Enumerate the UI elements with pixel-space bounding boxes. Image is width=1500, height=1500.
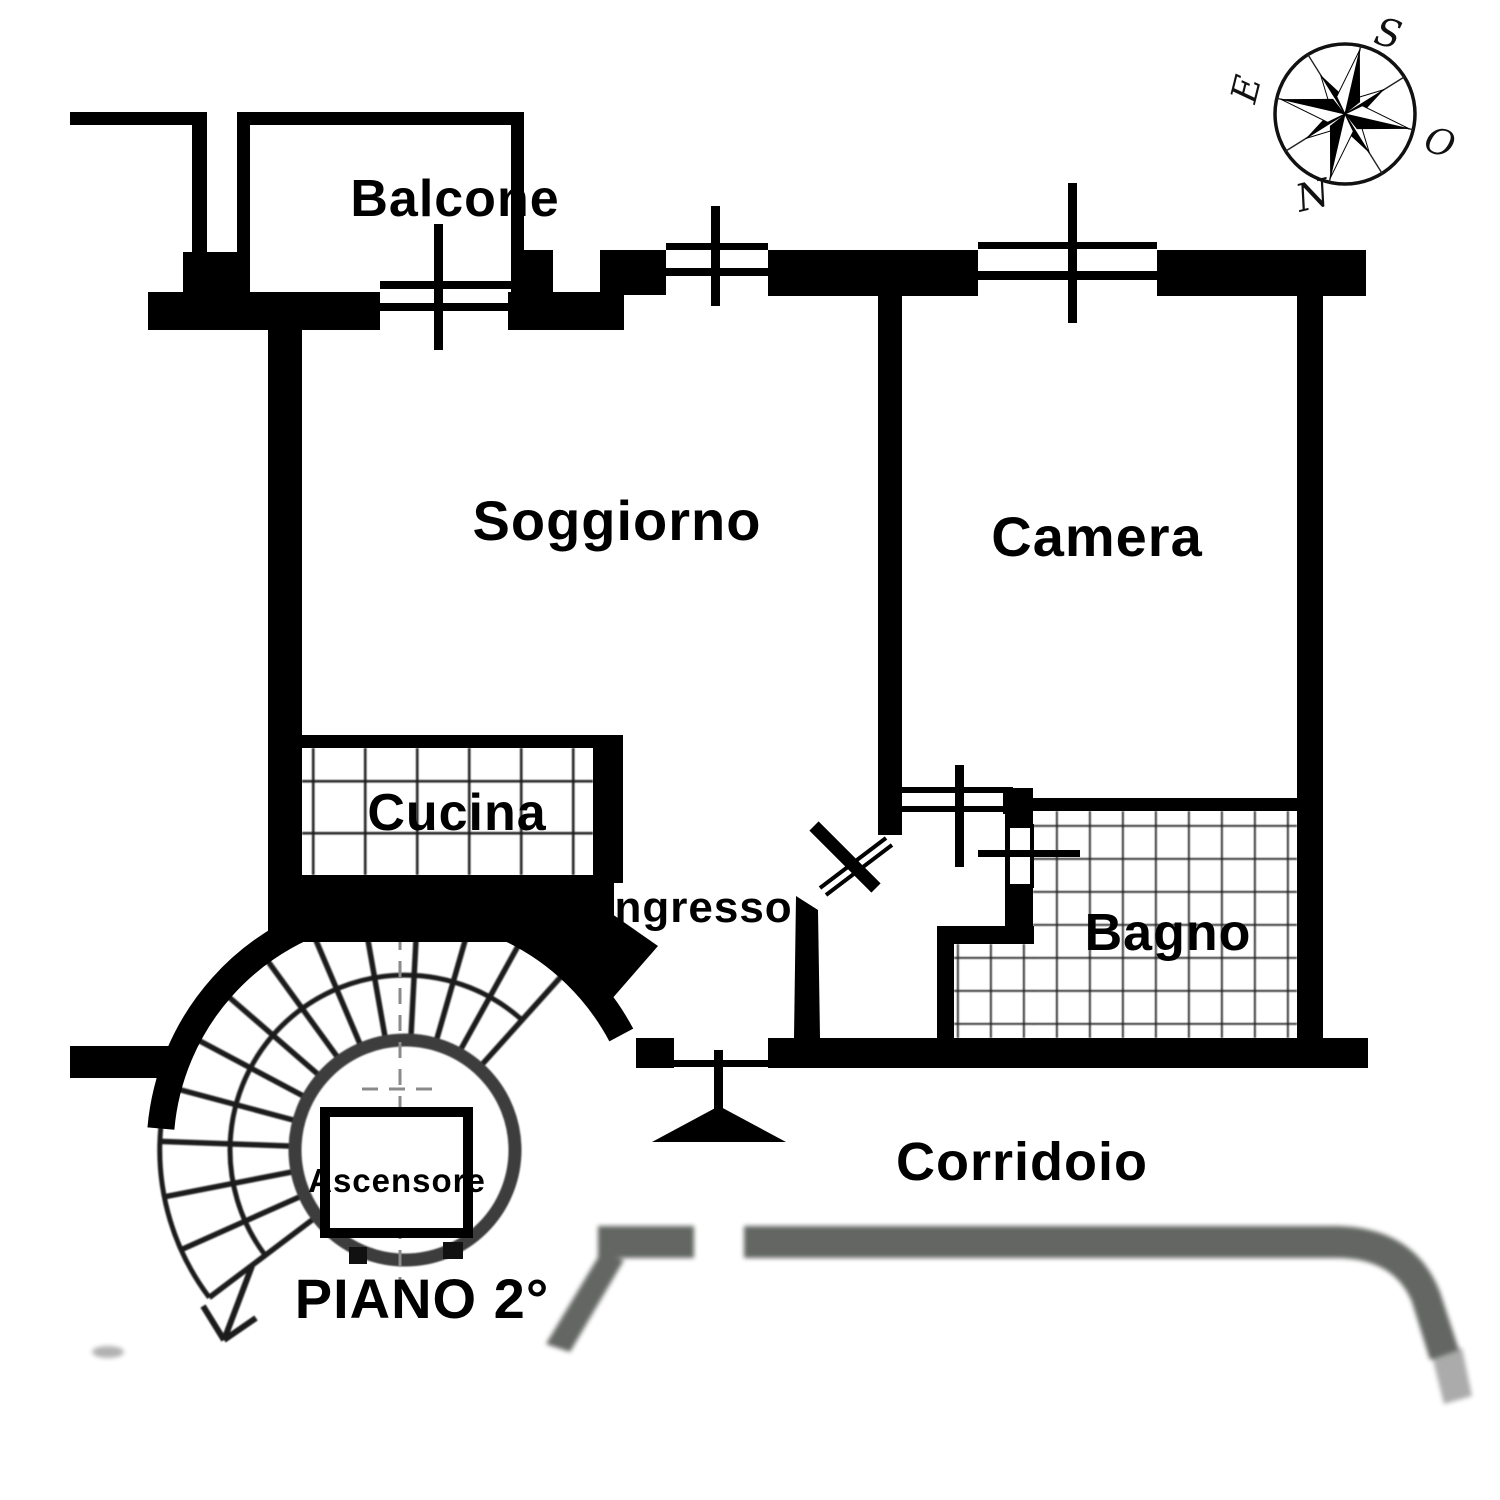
corridoio-label: Corridoio [896, 1132, 1148, 1192]
camera-bagno-wall [1013, 798, 1297, 811]
balcony-top-wall [237, 112, 524, 125]
top-wall-left [148, 292, 380, 330]
floor-title: PIANO 2° [295, 1267, 549, 1330]
balcony-right-foot [511, 250, 553, 294]
neighbor-wall-vertical [192, 112, 207, 258]
elevator-post [443, 1242, 463, 1259]
window-frame-line [978, 271, 1157, 280]
stairwell-wall-stub [70, 1046, 172, 1078]
camera-window [978, 183, 1157, 323]
stair-direction-arrow [203, 1266, 256, 1340]
stair-step-line [160, 1141, 295, 1146]
ingresso-angled-wall [794, 896, 820, 1038]
cucina-right-wall [593, 735, 623, 883]
ingresso-label: Ingresso [601, 883, 792, 932]
corridor-wall-right-tail [1432, 1348, 1472, 1404]
elevator-post [349, 1247, 367, 1264]
window-cross-tick [978, 850, 1080, 857]
right-outer-wall [1297, 294, 1323, 1040]
window-frame-line [978, 242, 1157, 249]
compass-north-label: N [1290, 170, 1336, 221]
corridor-wall-left-diagonal [546, 1254, 624, 1352]
compass-rose: S E O N [1224, 9, 1460, 221]
soggiorno-window [666, 206, 768, 306]
window-cross-tick [1068, 183, 1077, 323]
elevator: Ascensore [308, 1112, 486, 1233]
window-cross-tick [434, 224, 443, 350]
cucina-top-wall [300, 735, 598, 748]
stair-step-line [189, 1035, 308, 1098]
top-wall-a [768, 250, 978, 296]
floor-plan-drawing: Ascensore Balcone Soggiorno Camera Cucin… [0, 0, 1500, 1500]
compass-star [1261, 30, 1429, 198]
cucina-label: Cucina [367, 784, 546, 842]
balcony-left-wall [237, 112, 250, 300]
balcone-label: Balcone [350, 170, 559, 228]
top-wall-mid [508, 292, 624, 330]
ingresso-swing-door [814, 826, 892, 895]
window-cross-tick [711, 206, 720, 306]
top-wall-step [600, 250, 666, 295]
soggiorno-camera-divider-wall [878, 294, 902, 835]
stair-step-line [479, 968, 569, 1068]
camera-label: Camera [991, 505, 1202, 568]
soggiorno-label: Soggiorno [473, 489, 762, 552]
compass-main-points [1266, 35, 1424, 193]
bagno-label: Bagno [1085, 904, 1252, 962]
door-cross-tick [955, 765, 964, 867]
window-frame-line [380, 281, 511, 289]
neighbor-wall-horizontal [70, 112, 206, 125]
bagno-left-wall-lower [937, 926, 954, 1040]
ascensore-label: Ascensore [308, 1162, 486, 1199]
bottom-wall-left-block [636, 1038, 674, 1068]
corridor-wall-left [598, 1226, 694, 1258]
bottom-wall-main [768, 1038, 1368, 1068]
door-stem [714, 1050, 723, 1112]
corridor-wall-right [744, 1226, 1459, 1360]
corridor-smudge [92, 1346, 124, 1358]
neighbor-wall-step [183, 252, 239, 294]
compass-east-label: E [1224, 72, 1270, 108]
compass-south-label: S [1370, 9, 1406, 58]
soggiorno-left-wall [268, 330, 302, 890]
top-wall-b [1157, 250, 1366, 296]
bagno-tiles-lower [954, 944, 1034, 1038]
balcony-door-window [380, 224, 511, 350]
compass-west-label: O [1419, 119, 1460, 167]
stair-step-line [458, 936, 524, 1054]
window-frame-line [380, 303, 511, 311]
floor-plan-page: Ascensore Balcone Soggiorno Camera Cucin… [0, 0, 1500, 1500]
door-triangle [652, 1106, 786, 1142]
